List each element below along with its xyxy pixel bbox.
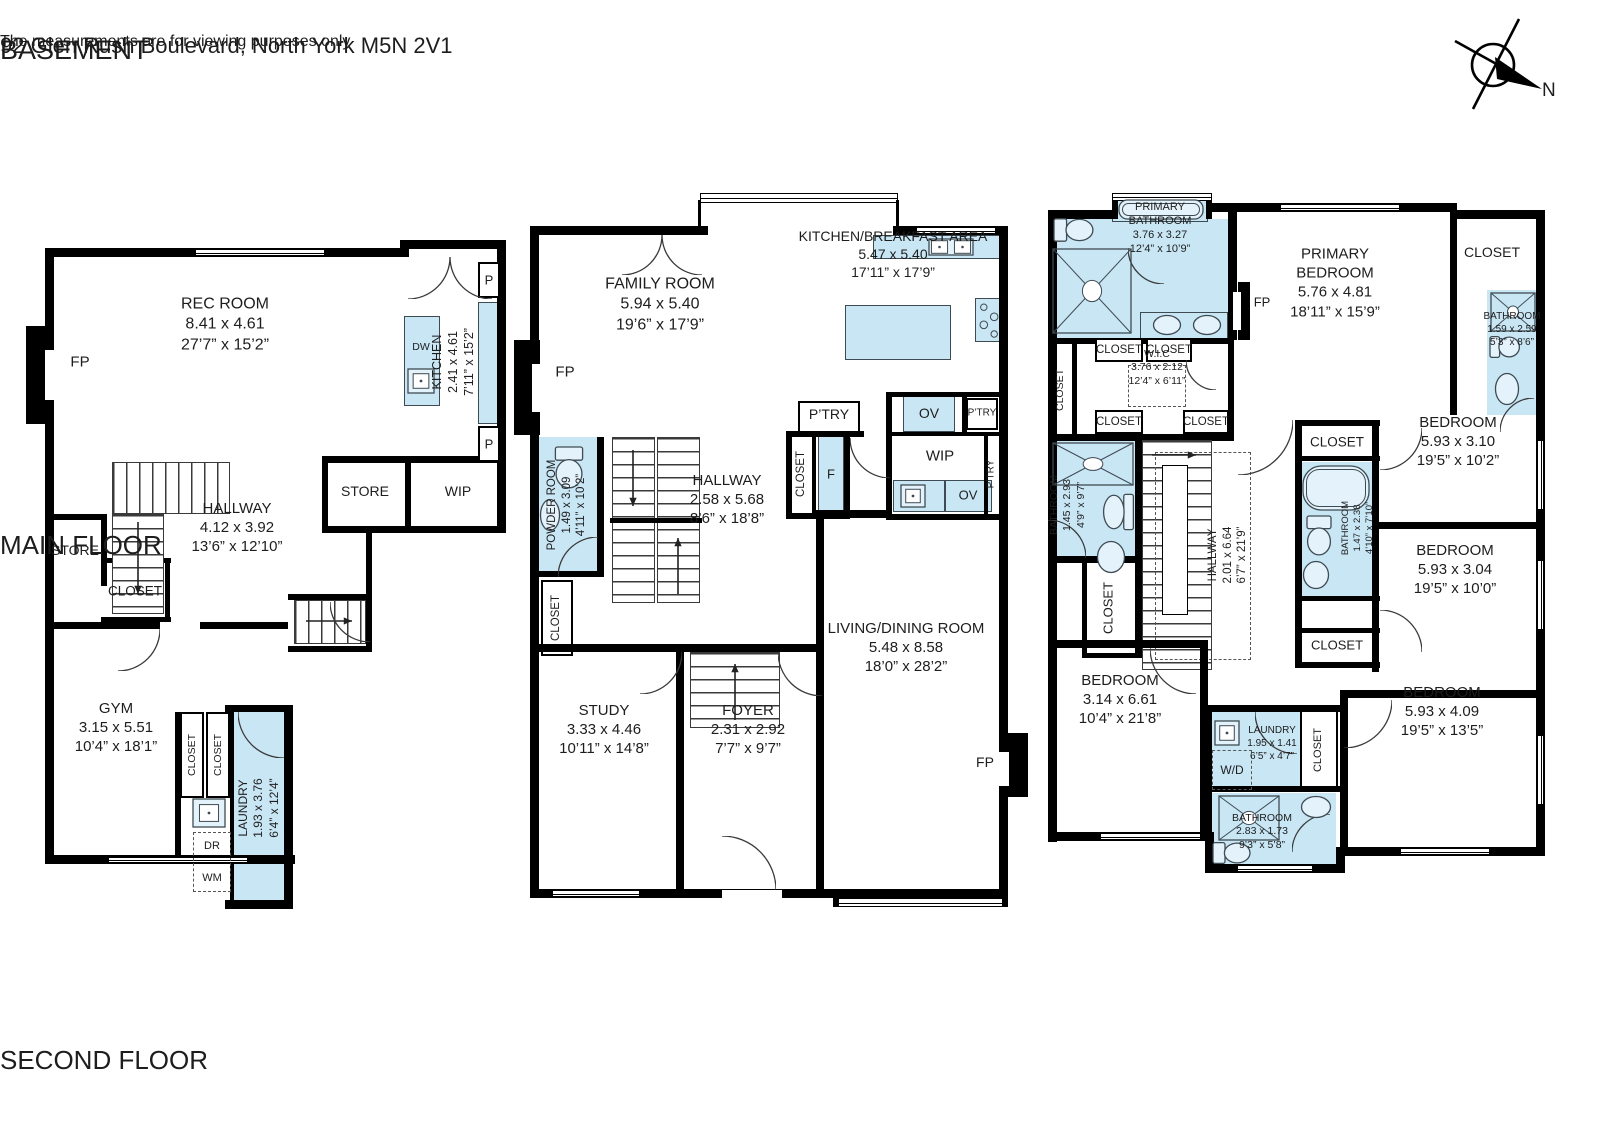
door-swing-arc [1292,814,1330,852]
wall [1450,210,1457,415]
window [1537,560,1544,630]
label-laundry: LAUNDRY1.95 x 1.416’5” x 4’7” [1247,725,1296,763]
label-fp: FP [976,754,994,770]
door-swing-arc [1238,420,1293,475]
wall [288,646,372,652]
room-imperial-text: 7’11” x 15’2” [461,328,477,396]
room-name-text: BEDROOM [1417,413,1500,432]
label-wip: WIP [445,483,471,499]
door-swing-arc [1380,610,1422,652]
room-name-text: HALLWAY [1206,527,1221,584]
room-imperial-text: 27’7” x 15’2” [181,335,269,355]
room-metric-text: 5.93 x 3.10 [1417,432,1500,451]
wall [1072,344,1077,440]
room-metric-text: 2.31 x 2.92 [711,720,785,739]
wall [225,705,291,712]
wall [400,240,506,249]
wet-area [478,302,498,424]
sink-icon [1192,314,1222,336]
room-imperial-text: 19’5” x 13’5” [1401,722,1484,741]
room-metric-text: 1.49 x 3.09 [560,460,575,551]
room-name-text: LAUNDRY [1247,725,1296,738]
shower-icon [1052,248,1132,334]
label-wic: W.I.C3.76 x 2.1212’4” x 6’11” [1128,348,1185,388]
room-metric-text: 3.15 x 5.51 [75,718,158,737]
door-swing-arc [640,652,682,694]
door-swing-arc [118,629,160,671]
room-metric-text: 8.41 x 4.61 [181,315,269,335]
direction-arrow [671,531,685,601]
door-swing-arc [330,602,370,642]
sinksq-icon [1214,720,1240,746]
room-name-text: KITCHEN [429,328,445,396]
wall-notch [532,364,544,412]
door-swing-arc [778,652,822,696]
label-hallway: HALLWAY2.58 x 5.688’6” x 18’8” [690,471,764,529]
compass-north-label: N [1542,80,1556,102]
label-wd: W/D [1220,763,1243,777]
wall [225,900,293,909]
door-swing-arc [1380,428,1422,470]
label-p: P [485,273,494,288]
room-metric-text: 5.93 x 3.04 [1414,560,1497,579]
label-powder-room: POWDER ROOM1.49 x 3.094’11” x 10’2” [545,460,589,551]
sink-icon [1302,560,1330,590]
direction-arrow [626,443,640,513]
wall [322,526,506,533]
room-name-text: BATHROOM [1048,475,1061,535]
label-ov: OV [959,488,978,503]
wall [165,558,170,622]
window [552,890,640,897]
room-imperial-text: 6’4” x 12’4” [267,778,282,837]
label-primary-bathroom: PRIMARY BATHROOM3.76 x 3.2712’4” x 10’9” [1112,200,1208,256]
room-name-text: LIVING/DINING ROOM [828,619,985,638]
room-metric-text: 5.76 x 4.81 [1265,283,1405,302]
door-swing-arc [722,836,776,890]
toilet-icon [1053,216,1095,244]
wall [400,240,409,257]
room-name-text: BEDROOM [1401,683,1484,702]
wall [597,437,604,577]
room-name-text: PRIMARY BATHROOM [1112,200,1208,228]
room-metric-text: 1.47 x 2.38 [1352,501,1364,555]
room-imperial-text: 19’5” x 10’0” [1414,580,1497,599]
wall [366,532,372,600]
wall [45,622,54,862]
wall [200,622,288,629]
sink-icon [1300,795,1332,819]
label-study: STUDY3.33 x 4.4610’11” x 14’8” [559,701,649,759]
wall [322,456,328,533]
label-p: P [485,437,494,452]
room-name-text: BEDROOM [1414,541,1497,560]
label-rec-room: REC ROOM8.41 x 4.6127’7” x 15’2” [181,294,269,355]
label-kitchen-breakfast: KITCHEN/BREAKFAST AREA5.47 x 5.4017’11” … [799,228,988,282]
room-imperial-text: 18’0” x 28’2” [828,658,985,677]
door-swing-arc [1344,700,1392,748]
label-hallway: HALLWAY2.01 x 6.646’7” x 21’9” [1206,527,1250,584]
wall [1295,596,1380,601]
room-name-text: KITCHEN/BREAKFAST AREA [799,228,988,246]
room-imperial-text: 7’7” x 9’7” [711,740,785,759]
label-ptry: P’TRY [986,460,997,489]
room-metric-text: 2.83 x 1.73 [1232,825,1292,838]
sink-icon [1494,372,1520,406]
label-closet: CLOSET [550,595,562,641]
label-closet: CLOSET [795,451,807,497]
window [1100,833,1205,840]
room-name-text: HALLWAY [690,471,764,490]
wall [1295,662,1380,668]
label-closet: CLOSET [186,734,198,776]
label-gym: GYM3.15 x 5.5110’4” x 18’1” [75,699,158,757]
door-swing-arc [850,438,890,478]
second-floor-title: SECOND FLOOR [0,1045,208,1076]
window [1537,735,1544,805]
room-metric-text: 5.47 x 5.40 [799,246,988,264]
label-bathroom-bottom: BATHROOM2.83 x 1.739’3” x 5’8” [1232,812,1292,852]
wall [530,644,684,652]
room-imperial-text: 4’11” x 10’2” [574,460,589,551]
wall [45,248,54,628]
room-imperial-text: 5’3” x 8’6” [1470,336,1554,349]
wall [833,889,839,907]
room-metric-text: 1.59 x 2.59 [1470,324,1554,337]
label-dw: DW [412,341,430,353]
label-foyer: FOYER2.31 x 2.927’7” x 9’7” [711,701,785,759]
wall-notch [45,350,59,400]
room-name-text: PRIMARY BEDROOM [1265,245,1405,283]
label-bedroom-4: BEDROOM5.93 x 4.0919’5” x 13’5” [1401,683,1484,741]
room-name-text: LAUNDRY [236,778,251,837]
label-fp: FP [555,364,574,381]
label-dr: DR [204,840,220,852]
wall-notch [999,752,1009,786]
label-living-dining: LIVING/DINING ROOM5.48 x 8.5818’0” x 28’… [828,619,985,677]
label-closet: CLOSET [1054,369,1066,411]
room-name-text: STUDY [559,701,649,720]
wall [1295,456,1380,461]
wall-notch [1233,292,1241,330]
room-metric-text: 2.01 x 6.64 [1221,527,1236,584]
label-kitchen: KITCHEN2.41 x 4.617’11” x 15’2” [429,328,477,396]
wet-area [845,305,951,360]
label-bedroom-2: BEDROOM5.93 x 3.0419’5” x 10’0” [1414,541,1497,599]
wall [45,514,107,520]
door-swing-arc [238,712,284,758]
sinksq-icon [900,484,926,508]
toilet-icon [1102,490,1134,534]
label-f: F [827,467,835,482]
room-imperial-text: 10’11” x 14’8” [559,740,649,759]
wall [682,644,824,652]
room-imperial-text: 13’6” x 12’10” [192,538,283,557]
label-closet: CLOSET [1096,416,1142,428]
wall-notch [722,890,782,898]
wall [1450,210,1545,219]
room-name-text: HALLWAY [192,499,283,518]
room-imperial-text: 6’7” x 21’9” [1235,527,1250,584]
disclaimer: The measurements are for viewing purpose… [0,33,350,51]
room-metric-text: 4.12 x 3.92 [192,518,283,537]
room-name-text: FOYER [711,701,785,720]
room-name-text: BATHROOM [1232,812,1292,825]
room-imperial-text: 18’11” x 15’9” [1265,302,1405,321]
wall [284,705,293,909]
room-imperial-text: 4’9” x 9’7” [1075,475,1088,535]
room-name-text: BATHROOM [1470,311,1554,324]
window [1237,865,1313,872]
door-swing-arc [622,235,662,275]
label-closet: CLOSET [1312,728,1324,772]
label-hallway: HALLWAY4.12 x 3.9213’6” x 12’10” [192,499,283,557]
direction-arrow [1145,448,1203,462]
label-bathroom-mid: BATHROOM1.47 x 2.384’10” x 7’10” [1340,501,1376,555]
room-name-text: BEDROOM [1079,671,1162,690]
window [1537,440,1544,510]
label-bathroom-ensuite: BATHROOM1.59 x 2.595’3” x 8’6” [1470,311,1554,349]
room-imperial-text: 12’4” x 10’9” [1112,242,1208,256]
compass-icon [1445,15,1555,115]
window [1280,204,1400,211]
room-imperial-text: 19’6” x 17’9” [605,315,715,335]
label-closet: CLOSET [212,734,224,776]
floor-plan-canvas: REC ROOM8.41 x 4.6127’7” x 15’2”FPKITCHE… [0,0,1600,1131]
label-bathroom-left: BATHROOM1.45 x 2.934’9” x 9’7” [1048,475,1088,535]
label-closet: CLOSET [108,584,162,599]
room-imperial-text: 4’10” x 7’10” [1364,501,1376,555]
label-bedroom-1: BEDROOM5.93 x 3.1019’5” x 10’2” [1417,413,1500,471]
wall [1002,889,1008,907]
wall [886,514,1008,520]
room-imperial-text: 9’3” x 5’8” [1232,839,1292,852]
label-wm: WM [202,872,222,884]
room-imperial-text: 17’11” x 17’9” [799,264,988,282]
label-closet: CLOSET [1310,435,1364,450]
room-imperial-text: 6’5” x 4’7” [1247,750,1296,763]
wall [1295,420,1380,426]
room-name-text: FAMILY ROOM [605,274,715,294]
room-metric-text: 3.14 x 6.61 [1079,690,1162,709]
label-closet: CLOSET [1464,244,1520,260]
wall [45,622,160,629]
wall [886,392,1008,397]
label-closet: CLOSET [1183,416,1229,428]
room-name-text: GYM [75,699,158,718]
wall [405,456,411,533]
room-name-text: W.I.C [1128,348,1185,361]
room-metric-text: 2.41 x 4.61 [445,328,461,396]
main-floor-title: MAIN FLOOR [0,530,162,561]
sinksq-icon [192,798,226,828]
door-swing-arc [408,257,450,299]
room-imperial-text: 19’5” x 10’2” [1417,452,1500,471]
wall [530,226,539,898]
room-metric-text: 1.93 x 3.76 [251,778,266,837]
stove-icon [976,300,1002,340]
wall [886,432,1008,436]
toilet-icon [1304,515,1334,557]
room-imperial-text: 8’6” x 18’8” [690,510,764,529]
label-store: STORE [341,483,389,499]
label-ov: OV [919,405,939,421]
wall [822,510,890,518]
window [1400,848,1490,855]
room-metric-text: 5.93 x 4.09 [1401,702,1484,721]
wall [530,226,708,235]
wall [812,435,816,515]
room-metric-text: 3.33 x 4.46 [559,720,649,739]
wall [786,431,792,519]
room-imperial-text: 10’4” x 21’8” [1079,710,1162,729]
room-metric-text: 3.76 x 2.12 [1128,361,1185,374]
label-family-room: FAMILY ROOM5.94 x 5.4019’6” x 17’9” [605,274,715,335]
room-name-text: POWDER ROOM [545,460,560,551]
wall [896,200,899,230]
label-closet: CLOSET [1311,638,1363,653]
room-metric-text: 5.94 x 5.40 [605,295,715,315]
door-swing-arc [662,235,702,275]
window [195,249,325,256]
label-closet: CLOSET [1101,582,1116,634]
wall [1048,640,1208,648]
wall [1082,653,1142,658]
window [838,898,1004,907]
label-bedroom-3: BEDROOM3.14 x 6.6110’4” x 21’8” [1079,671,1162,729]
room-imperial-text: 12’4” x 6’11” [1128,375,1185,388]
label-wip: WIP [926,448,954,465]
sink-icon [1152,314,1182,336]
label-fp: FP [70,354,89,371]
room-name-text: REC ROOM [181,294,269,314]
wall [1378,522,1545,529]
label-primary-bedroom: PRIMARY BEDROOM5.76 x 4.8118’11” x 15’9” [1265,245,1405,322]
room-metric-text: 1.45 x 2.93 [1061,475,1074,535]
sink-icon [1096,540,1126,574]
room-imperial-text: 10’4” x 18’1” [75,738,158,757]
room-metric-text: 5.48 x 8.58 [828,638,985,657]
door-swing-arc [1186,360,1216,390]
wall [698,200,701,230]
room-metric-text: 3.76 x 3.27 [1112,228,1208,242]
label-ptry: P’TRY [968,408,997,419]
label-ptry: P’TRY [809,406,849,422]
wall [1048,640,1057,842]
wall [1295,628,1380,633]
room-name-text: BATHROOM [1340,501,1352,555]
wall [610,518,702,523]
wall [1135,434,1142,562]
label-laundry: LAUNDRY1.93 x 3.766’4” x 12’4” [236,778,282,837]
wall [816,510,824,652]
room-metric-text: 1.95 x 1.41 [1247,738,1296,751]
wall [786,431,864,437]
room-metric-text: 2.58 x 5.68 [690,490,764,509]
window [700,193,898,203]
